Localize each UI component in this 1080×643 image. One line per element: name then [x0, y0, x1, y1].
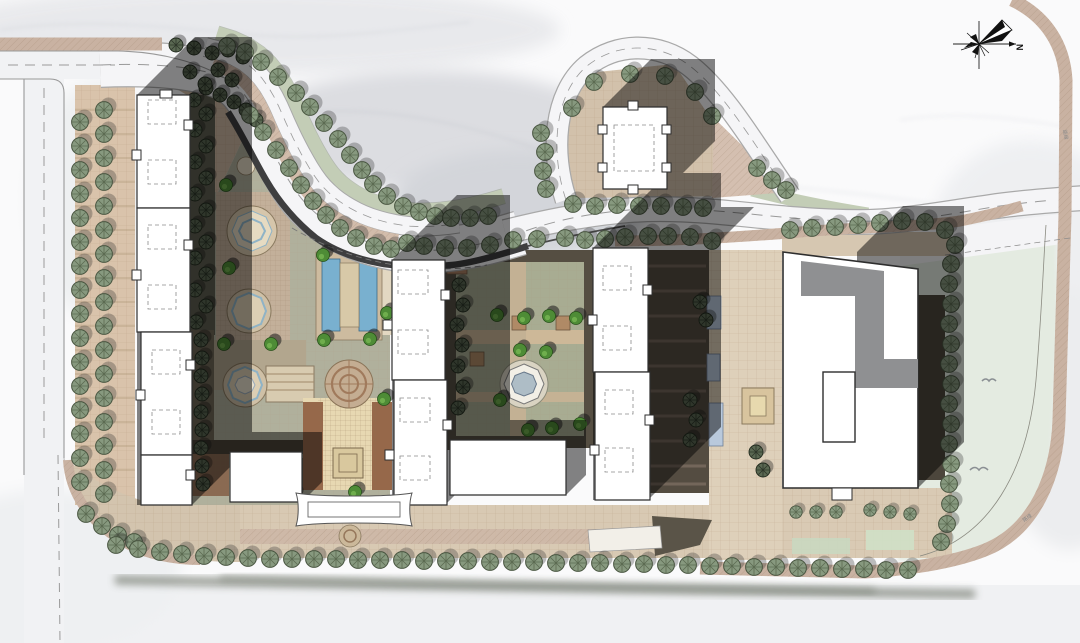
svg-text:N: N [1015, 44, 1025, 51]
